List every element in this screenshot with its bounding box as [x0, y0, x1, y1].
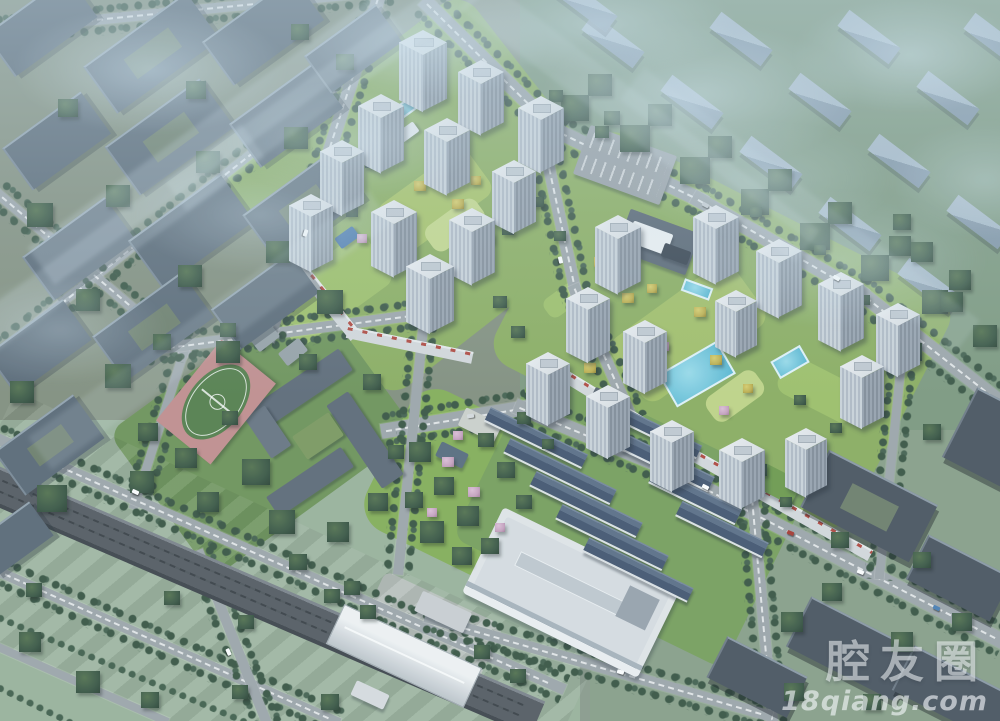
car [466, 414, 473, 419]
rooftop-unit [734, 446, 753, 455]
tree [474, 645, 490, 659]
tree [497, 462, 515, 478]
residential-tower [818, 272, 864, 353]
tree [471, 176, 481, 185]
tree [164, 591, 180, 605]
tree [923, 424, 941, 440]
residential-tower [650, 420, 694, 494]
tree [197, 492, 219, 512]
tower-facade-left [289, 205, 311, 272]
residential-tower [840, 355, 884, 431]
tree [266, 241, 290, 263]
tree [344, 581, 360, 595]
rooftop-unit [464, 216, 483, 225]
tree [242, 459, 270, 484]
tree [405, 492, 423, 508]
tree [363, 374, 381, 390]
tree [105, 364, 131, 387]
tree [220, 323, 236, 337]
car [557, 256, 562, 264]
rooftop-unit [610, 223, 629, 232]
residential-tower [449, 208, 495, 287]
rooftop-unit [334, 147, 352, 156]
residential-tower [492, 160, 536, 236]
tree [141, 692, 159, 708]
residential-tower [715, 290, 757, 359]
watermark-domain: 18qiang.com [781, 686, 988, 717]
rooftop-unit [439, 126, 458, 135]
tree [794, 395, 806, 406]
tree [37, 485, 67, 512]
rooftop-unit [771, 247, 790, 256]
tree [680, 157, 710, 184]
tree [493, 296, 507, 309]
residential-tower [358, 94, 404, 175]
rooftop-unit [854, 362, 872, 371]
rooftop-unit [421, 262, 440, 271]
tree [453, 431, 463, 440]
rooftop-unit [708, 213, 727, 222]
tree [222, 411, 238, 425]
tree [291, 24, 309, 40]
tree [26, 583, 42, 597]
tree [19, 632, 41, 652]
tree [427, 508, 437, 517]
tree [949, 270, 971, 290]
tree [327, 522, 349, 542]
tree [913, 552, 931, 568]
tree [27, 203, 53, 226]
tree [186, 81, 206, 99]
tree [289, 554, 307, 570]
tree [76, 289, 100, 311]
tree [10, 381, 34, 403]
residential-tower [406, 254, 454, 336]
rooftop-unit [890, 310, 908, 319]
rooftop-unit [833, 280, 852, 289]
residential-tower [586, 385, 630, 461]
tree [269, 510, 295, 533]
tree [648, 104, 672, 126]
tree [861, 255, 889, 280]
residential-tower [424, 118, 470, 197]
tree [588, 74, 612, 96]
tree [952, 613, 972, 631]
tower-facade-right [311, 206, 333, 271]
tree [58, 99, 78, 117]
tree [299, 354, 317, 370]
tree [708, 136, 732, 158]
rooftop-unit [637, 327, 655, 336]
tree [561, 95, 589, 120]
residential-tower [719, 438, 765, 511]
tree [604, 111, 620, 125]
tree [481, 538, 499, 554]
tree [911, 242, 933, 262]
tree [284, 127, 308, 149]
tree [743, 384, 753, 393]
tree [196, 151, 220, 173]
rooftop-unit [533, 104, 552, 113]
tree [321, 694, 339, 710]
tree [409, 442, 431, 462]
tree [452, 547, 472, 565]
tree [516, 495, 532, 509]
tree [434, 477, 454, 495]
tree [510, 669, 526, 683]
tree [828, 202, 852, 224]
context-courtyard [27, 424, 75, 467]
tree [511, 326, 525, 339]
tree [153, 334, 171, 350]
tree [388, 445, 404, 459]
rooftop-unit [506, 167, 524, 176]
tree [357, 234, 367, 243]
tree [750, 207, 762, 218]
tree [814, 245, 826, 256]
tree [973, 325, 997, 347]
tree [647, 284, 657, 293]
tree [360, 605, 376, 619]
tree [368, 493, 388, 511]
tree [889, 236, 911, 256]
residential-tower [785, 428, 827, 499]
aerial-masterplan-render: 腔友圈 18qiang.com [0, 0, 1000, 721]
residential-tower [756, 239, 802, 320]
tree [941, 292, 963, 312]
tree [238, 615, 254, 629]
tree [336, 54, 354, 70]
context-courtyard [123, 27, 182, 79]
tree [620, 125, 650, 152]
residential-tower [566, 287, 610, 365]
tree [694, 307, 706, 318]
residential-tower [693, 205, 739, 286]
rooftop-unit [798, 435, 815, 443]
rooftop-unit [473, 68, 492, 77]
tree [442, 457, 454, 468]
tree [457, 506, 479, 526]
watermark: 腔友圈 18qiang.com [781, 640, 988, 717]
rooftop-unit [373, 102, 392, 111]
rooftop-unit [664, 427, 682, 436]
residential-tower [289, 194, 333, 274]
context-courtyard [142, 112, 198, 162]
rooftop-unit [580, 294, 598, 303]
tree [719, 406, 729, 415]
rooftop-unit [386, 208, 405, 217]
tree [468, 487, 480, 498]
tree [554, 231, 566, 242]
residential-tower [595, 215, 641, 296]
tree [232, 685, 248, 699]
tree [781, 612, 803, 632]
tree [542, 439, 554, 450]
rooftop-unit [540, 359, 558, 368]
residential-tower [399, 30, 447, 114]
tree [178, 265, 202, 287]
rooftop-unit [728, 297, 745, 305]
tree [216, 341, 240, 363]
tree [175, 448, 197, 468]
tree [768, 169, 792, 191]
tree [495, 523, 505, 532]
tree [478, 433, 494, 447]
tree [595, 126, 609, 139]
tree [822, 583, 842, 601]
tree [138, 423, 158, 441]
rooftop-unit [303, 201, 321, 210]
tree [106, 185, 130, 207]
rooftop-unit [600, 392, 618, 401]
tree [317, 290, 343, 313]
watermark-text: 腔友圈 [781, 640, 988, 686]
context-courtyard [840, 483, 899, 531]
rooftop-unit [414, 38, 433, 47]
tree [76, 671, 100, 693]
tree [831, 532, 849, 548]
tree [420, 521, 444, 543]
tree [893, 214, 911, 230]
tree [324, 589, 340, 603]
residential-tower [526, 352, 570, 428]
